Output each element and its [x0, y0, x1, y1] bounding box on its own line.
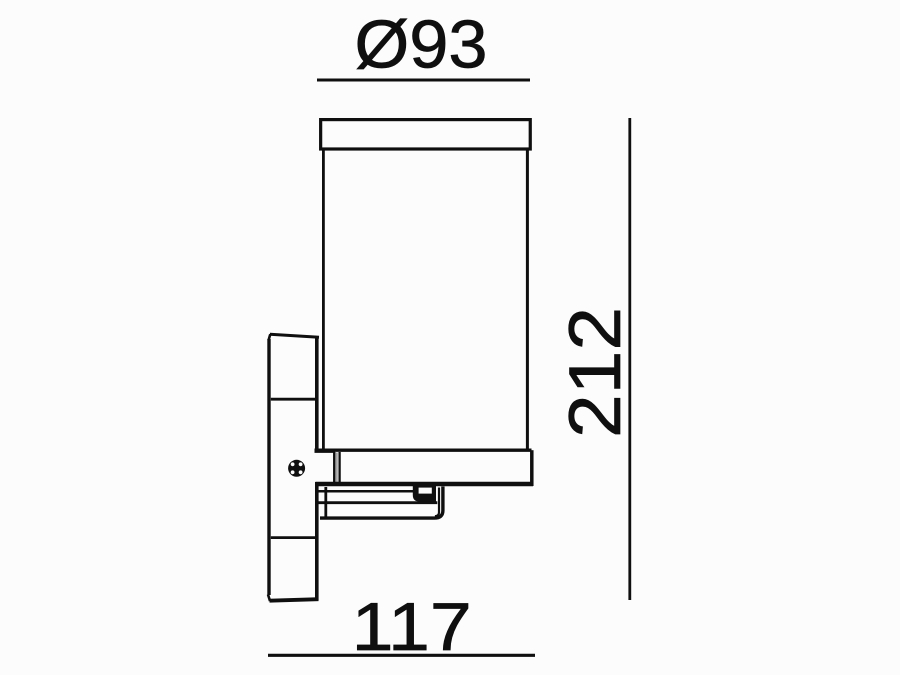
- svg-text:117: 117: [352, 589, 472, 665]
- svg-text:Ø93: Ø93: [355, 7, 488, 83]
- svg-text:212: 212: [555, 307, 636, 438]
